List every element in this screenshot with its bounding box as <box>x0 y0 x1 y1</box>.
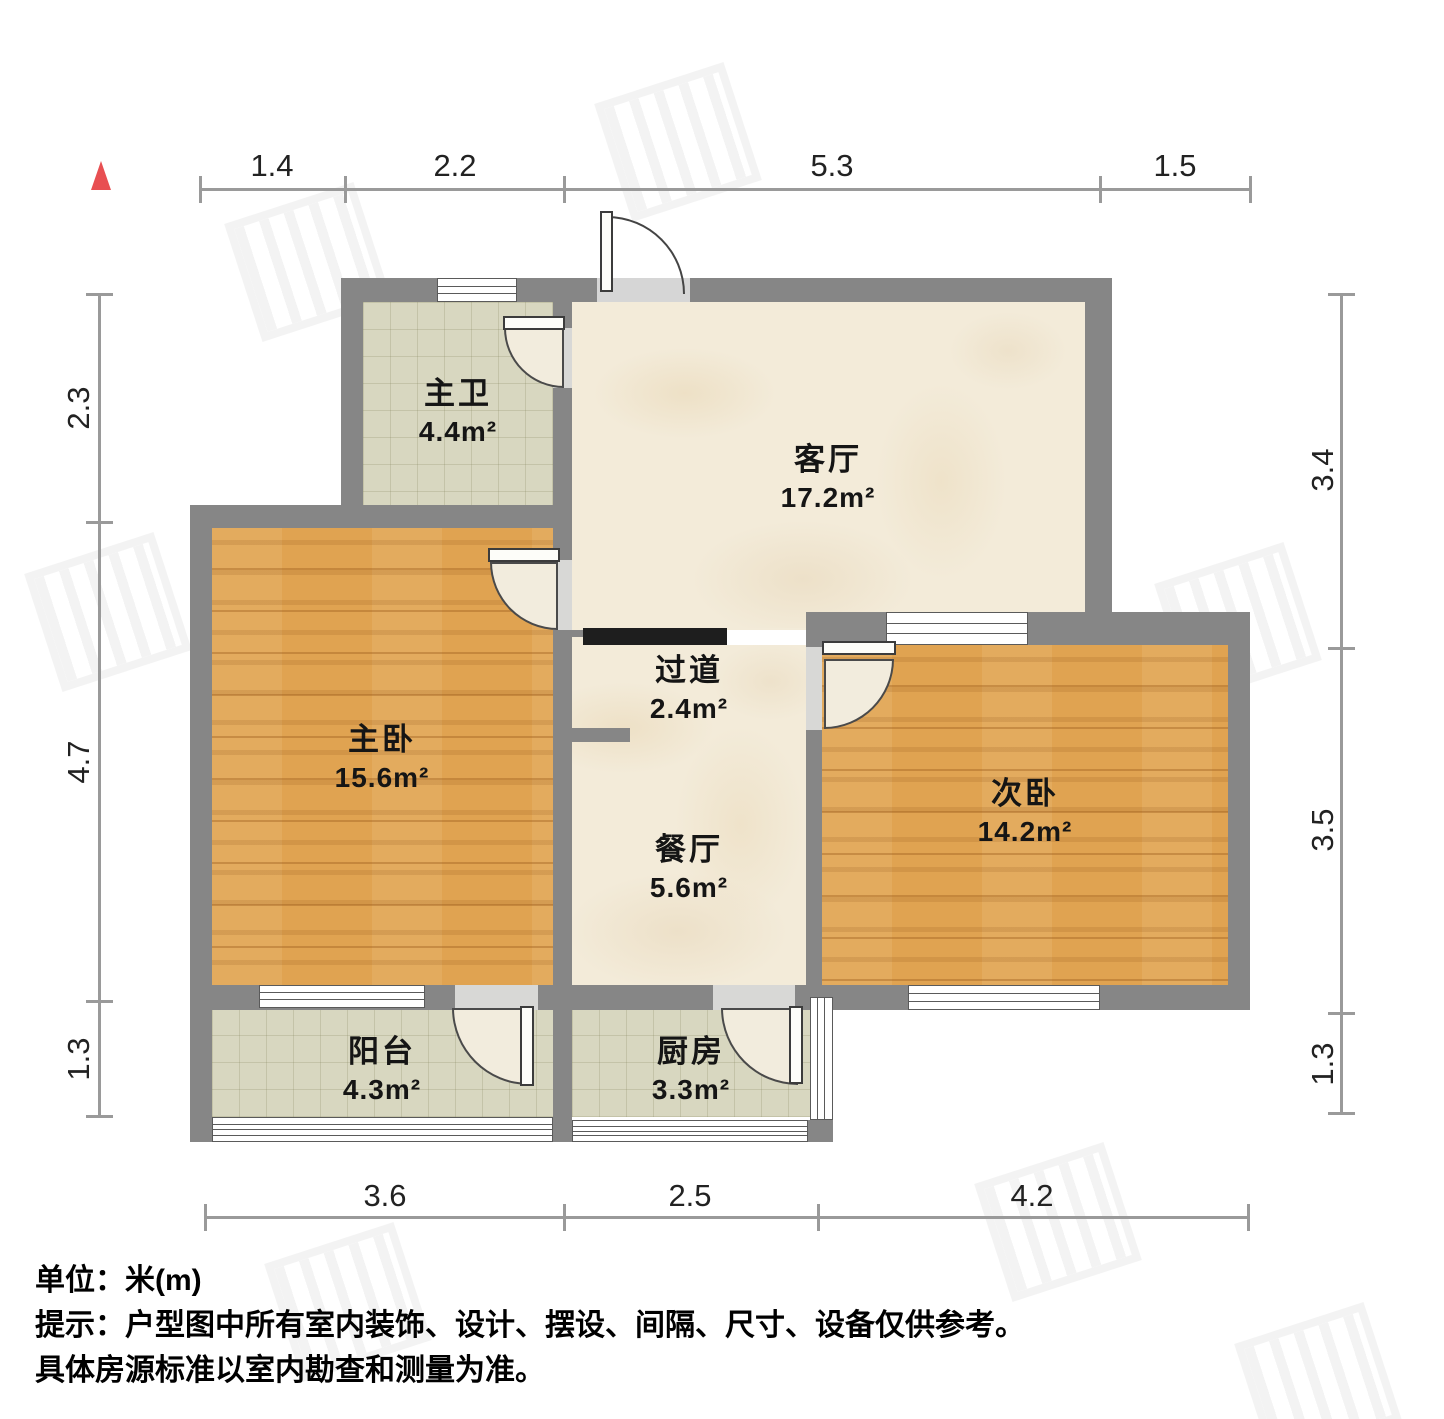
dim-right-3: 1.3 <box>1305 1024 1339 1104</box>
label-balcony: 阳台 4.3m² <box>302 1026 462 1106</box>
ruler-tick <box>86 293 113 296</box>
room-name: 次卧 <box>945 768 1105 813</box>
label-second-bedroom: 次卧 14.2m² <box>945 768 1105 848</box>
wall-corridor-black <box>583 628 727 645</box>
ruler-top-line <box>200 188 1252 191</box>
ruler-bottom-line <box>205 1216 1249 1219</box>
dim-left-2: 4.7 <box>61 722 95 802</box>
ruler-tick <box>563 1204 566 1231</box>
room-name: 阳台 <box>302 1026 462 1071</box>
ruler-tick <box>1328 647 1355 650</box>
footer-notes: 单位：米(m) 提示：户型图中所有室内装饰、设计、摆设、间隔、尺寸、设备仅供参考… <box>35 1258 1025 1393</box>
wall-corridor-edge <box>568 630 583 637</box>
ruler-tick <box>1328 293 1355 296</box>
note-tip2: 具体房源标准以室内勘查和测量为准。 <box>35 1348 1025 1393</box>
dim-top-3: 5.3 <box>772 148 892 184</box>
ruler-tick <box>563 176 566 203</box>
ruler-tick <box>1328 1112 1355 1115</box>
room-name: 客厅 <box>748 434 908 479</box>
dim-top-1: 1.4 <box>212 148 332 184</box>
window-balcony-bottom <box>212 1117 553 1142</box>
room-area: 4.4m² <box>378 416 538 448</box>
ruler-tick <box>86 1000 113 1003</box>
ruler-tick <box>344 176 347 203</box>
window-second-bottom <box>908 985 1100 1010</box>
wall-dining-stub <box>568 728 630 742</box>
wall-bedroom-top <box>190 505 572 528</box>
wall-central-c <box>553 630 572 1142</box>
window-master-balcony <box>259 985 425 1008</box>
ruler-tick <box>1328 1012 1355 1015</box>
dim-bottom-1: 3.6 <box>325 1178 445 1214</box>
wall-central-b <box>553 388 572 560</box>
wall-second-left-a <box>806 612 822 647</box>
note-unit: 单位：米(m) <box>35 1258 1025 1303</box>
room-area: 4.3m² <box>302 1074 462 1106</box>
opening-living-corridor <box>727 630 806 645</box>
window-kitchen-right <box>810 997 833 1120</box>
second-door-leaf <box>822 641 896 655</box>
label-master-bedroom: 主卧 15.6m² <box>302 714 462 794</box>
entry-door-arc <box>607 216 685 294</box>
room-area: 2.4m² <box>609 693 769 725</box>
north-arrow-icon <box>91 161 111 190</box>
ruler-left-line <box>98 294 101 1117</box>
room-name: 主卧 <box>302 714 462 759</box>
ruler-tick <box>204 1204 207 1231</box>
dim-right-1: 3.4 <box>1305 430 1339 510</box>
dim-bottom-2: 2.5 <box>630 1178 750 1214</box>
entry-door-leaf <box>600 211 613 292</box>
dim-top-4: 1.5 <box>1115 148 1235 184</box>
ruler-tick <box>199 176 202 203</box>
wall-left <box>190 505 212 1142</box>
wall-second-left-b <box>806 730 822 1010</box>
room-area: 15.6m² <box>302 762 462 794</box>
wall-bath-left <box>341 278 363 528</box>
room-name: 过道 <box>609 645 769 690</box>
watermark <box>24 532 192 692</box>
ruler-right-line <box>1340 294 1343 1115</box>
ruler-tick <box>817 1204 820 1231</box>
wall-second-right <box>1228 612 1250 1010</box>
window-kitchen-bottom <box>572 1120 808 1142</box>
room-area: 17.2m² <box>748 482 908 514</box>
window-living-second <box>886 612 1028 645</box>
balcony-door-leaf <box>520 1006 534 1086</box>
wall-living-right <box>1085 278 1112 645</box>
bath-door-leaf <box>503 316 565 330</box>
watermark <box>1234 1302 1402 1419</box>
room-name: 厨房 <box>611 1026 771 1071</box>
room-area: 3.3m² <box>611 1074 771 1106</box>
floor-plan-canvas: 主卫 4.4m² 客厅 17.2m² 主卧 15.6m² 过道 2.4m² 餐厅… <box>0 0 1444 1419</box>
ruler-tick <box>86 521 113 524</box>
dim-left-3: 1.3 <box>61 1019 95 1099</box>
note-tip: 提示：户型图中所有室内装饰、设计、摆设、间隔、尺寸、设备仅供参考。 <box>35 1303 1025 1348</box>
label-master-bath: 主卫 4.4m² <box>378 368 538 448</box>
dim-left-1: 2.3 <box>61 368 95 448</box>
dim-bottom-3: 4.2 <box>972 1178 1092 1214</box>
dim-top-2: 2.2 <box>395 148 515 184</box>
kitchen-door-opening <box>713 985 795 1010</box>
dim-right-2: 3.5 <box>1305 790 1339 870</box>
ruler-tick <box>1247 1204 1250 1231</box>
label-living-room: 客厅 17.2m² <box>748 434 908 514</box>
master-door-leaf <box>488 548 560 562</box>
room-area: 14.2m² <box>945 816 1105 848</box>
watermark <box>594 62 762 222</box>
label-kitchen: 厨房 3.3m² <box>611 1026 771 1106</box>
room-name: 主卫 <box>378 368 538 413</box>
label-corridor: 过道 2.4m² <box>609 645 769 725</box>
window-bath-top <box>437 278 517 302</box>
room-name: 餐厅 <box>609 824 769 869</box>
room-area: 5.6m² <box>609 872 769 904</box>
ruler-tick <box>86 1115 113 1118</box>
ruler-tick <box>1249 176 1252 203</box>
ruler-tick <box>1099 176 1102 203</box>
second-door-opening <box>806 647 822 730</box>
wall-post-kitchen-corner <box>808 1120 833 1142</box>
label-dining-room: 餐厅 5.6m² <box>609 824 769 904</box>
wall-post-balcony-kitchen <box>553 1117 572 1142</box>
kitchen-door-leaf <box>789 1006 803 1084</box>
